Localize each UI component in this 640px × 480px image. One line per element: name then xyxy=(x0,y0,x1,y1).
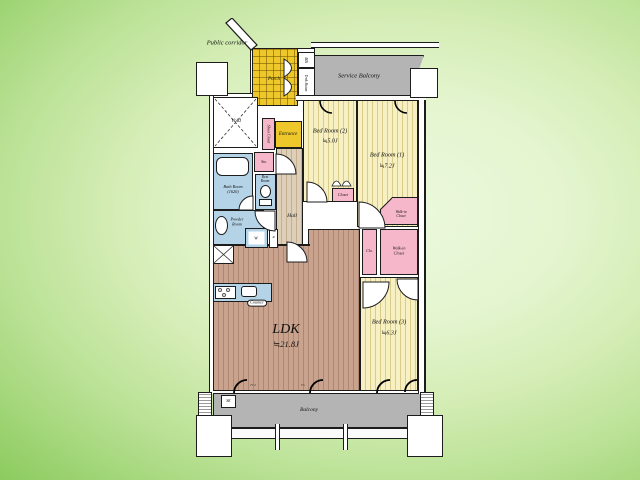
trunk-room-label: Trnk Room xyxy=(304,75,308,92)
fridge-label: R xyxy=(272,236,274,240)
mb-label: MB xyxy=(304,57,308,62)
walkin-closet-big-label: Walk-inCloset xyxy=(393,246,406,255)
pillar-top-right xyxy=(410,68,438,98)
pillar-bottom-left xyxy=(196,415,232,457)
balcony xyxy=(213,392,432,428)
rest-room-label: RestRoom xyxy=(261,175,270,184)
bedroom1-label: Bed Room (1) xyxy=(370,153,404,160)
entrance-label: Entrance xyxy=(279,132,297,138)
wall-right xyxy=(418,100,425,394)
void-label: Void xyxy=(231,118,241,124)
ldk-area-label: ≒21.8J xyxy=(273,340,299,350)
wall-top xyxy=(296,95,426,101)
clo-label: Clo. xyxy=(366,249,373,253)
bedroom2-closet-label: Closet xyxy=(338,193,348,197)
hall-label: Hall xyxy=(287,213,297,219)
washer-label: W xyxy=(254,235,258,240)
ldk xyxy=(213,245,360,394)
bedroom2-label: Bed Room (2) xyxy=(313,129,347,136)
balcony-label: Balcony xyxy=(300,407,318,413)
ldk-label: LDK xyxy=(272,322,299,338)
wall-left xyxy=(209,93,214,394)
window-code-label: FGl xyxy=(250,384,255,388)
burner-icon xyxy=(226,288,230,292)
walkin-closet-top-label: Walk-inCloset xyxy=(395,210,406,218)
bath-room-label: Bath Room(1620) xyxy=(223,185,242,195)
powder-room-label: PowderRoom xyxy=(230,217,243,226)
bedroom2-area-label: ≒5.0J xyxy=(322,139,337,146)
window-code-label: Fn xyxy=(301,384,305,388)
balcony-railing xyxy=(207,428,433,439)
burner-icon xyxy=(218,288,222,292)
sink-icon xyxy=(215,216,228,235)
bedroom3-area-label: ≒6.3J xyxy=(381,331,396,338)
toilet-tank-icon xyxy=(259,199,272,206)
pillar-top-left xyxy=(196,62,228,96)
porch-label: Porch xyxy=(268,77,280,83)
service-balcony-label: Service Balcony xyxy=(338,72,380,79)
toilet-icon xyxy=(260,185,271,198)
burner-icon xyxy=(222,293,226,297)
bedroom3-label: Bed Room (3) xyxy=(372,320,406,327)
window-band-bottom xyxy=(213,390,418,394)
bedroom-2 xyxy=(303,100,357,202)
bedroom1-area-label: ≒7.2J xyxy=(379,164,394,171)
sk-label: SK xyxy=(226,399,230,403)
storage-label: Sto. xyxy=(261,160,267,164)
shoes-closet-label: Shoes Closet xyxy=(266,125,270,143)
kitchen-sink-icon xyxy=(241,286,257,297)
bathtub-icon xyxy=(216,157,249,176)
background: Public corridor Porch MB Trnk Room Servi… xyxy=(0,0,640,480)
public-corridor-label: Public corridor xyxy=(207,39,248,46)
pillar-bottom-right xyxy=(407,415,443,457)
railing-post xyxy=(343,424,348,450)
pipe-space xyxy=(213,245,234,264)
railing-post xyxy=(275,424,280,450)
counter-label: Counter xyxy=(247,300,267,307)
roof-edge xyxy=(311,42,439,48)
floor-plan: Public corridor Porch MB Trnk Room Servi… xyxy=(196,18,444,458)
